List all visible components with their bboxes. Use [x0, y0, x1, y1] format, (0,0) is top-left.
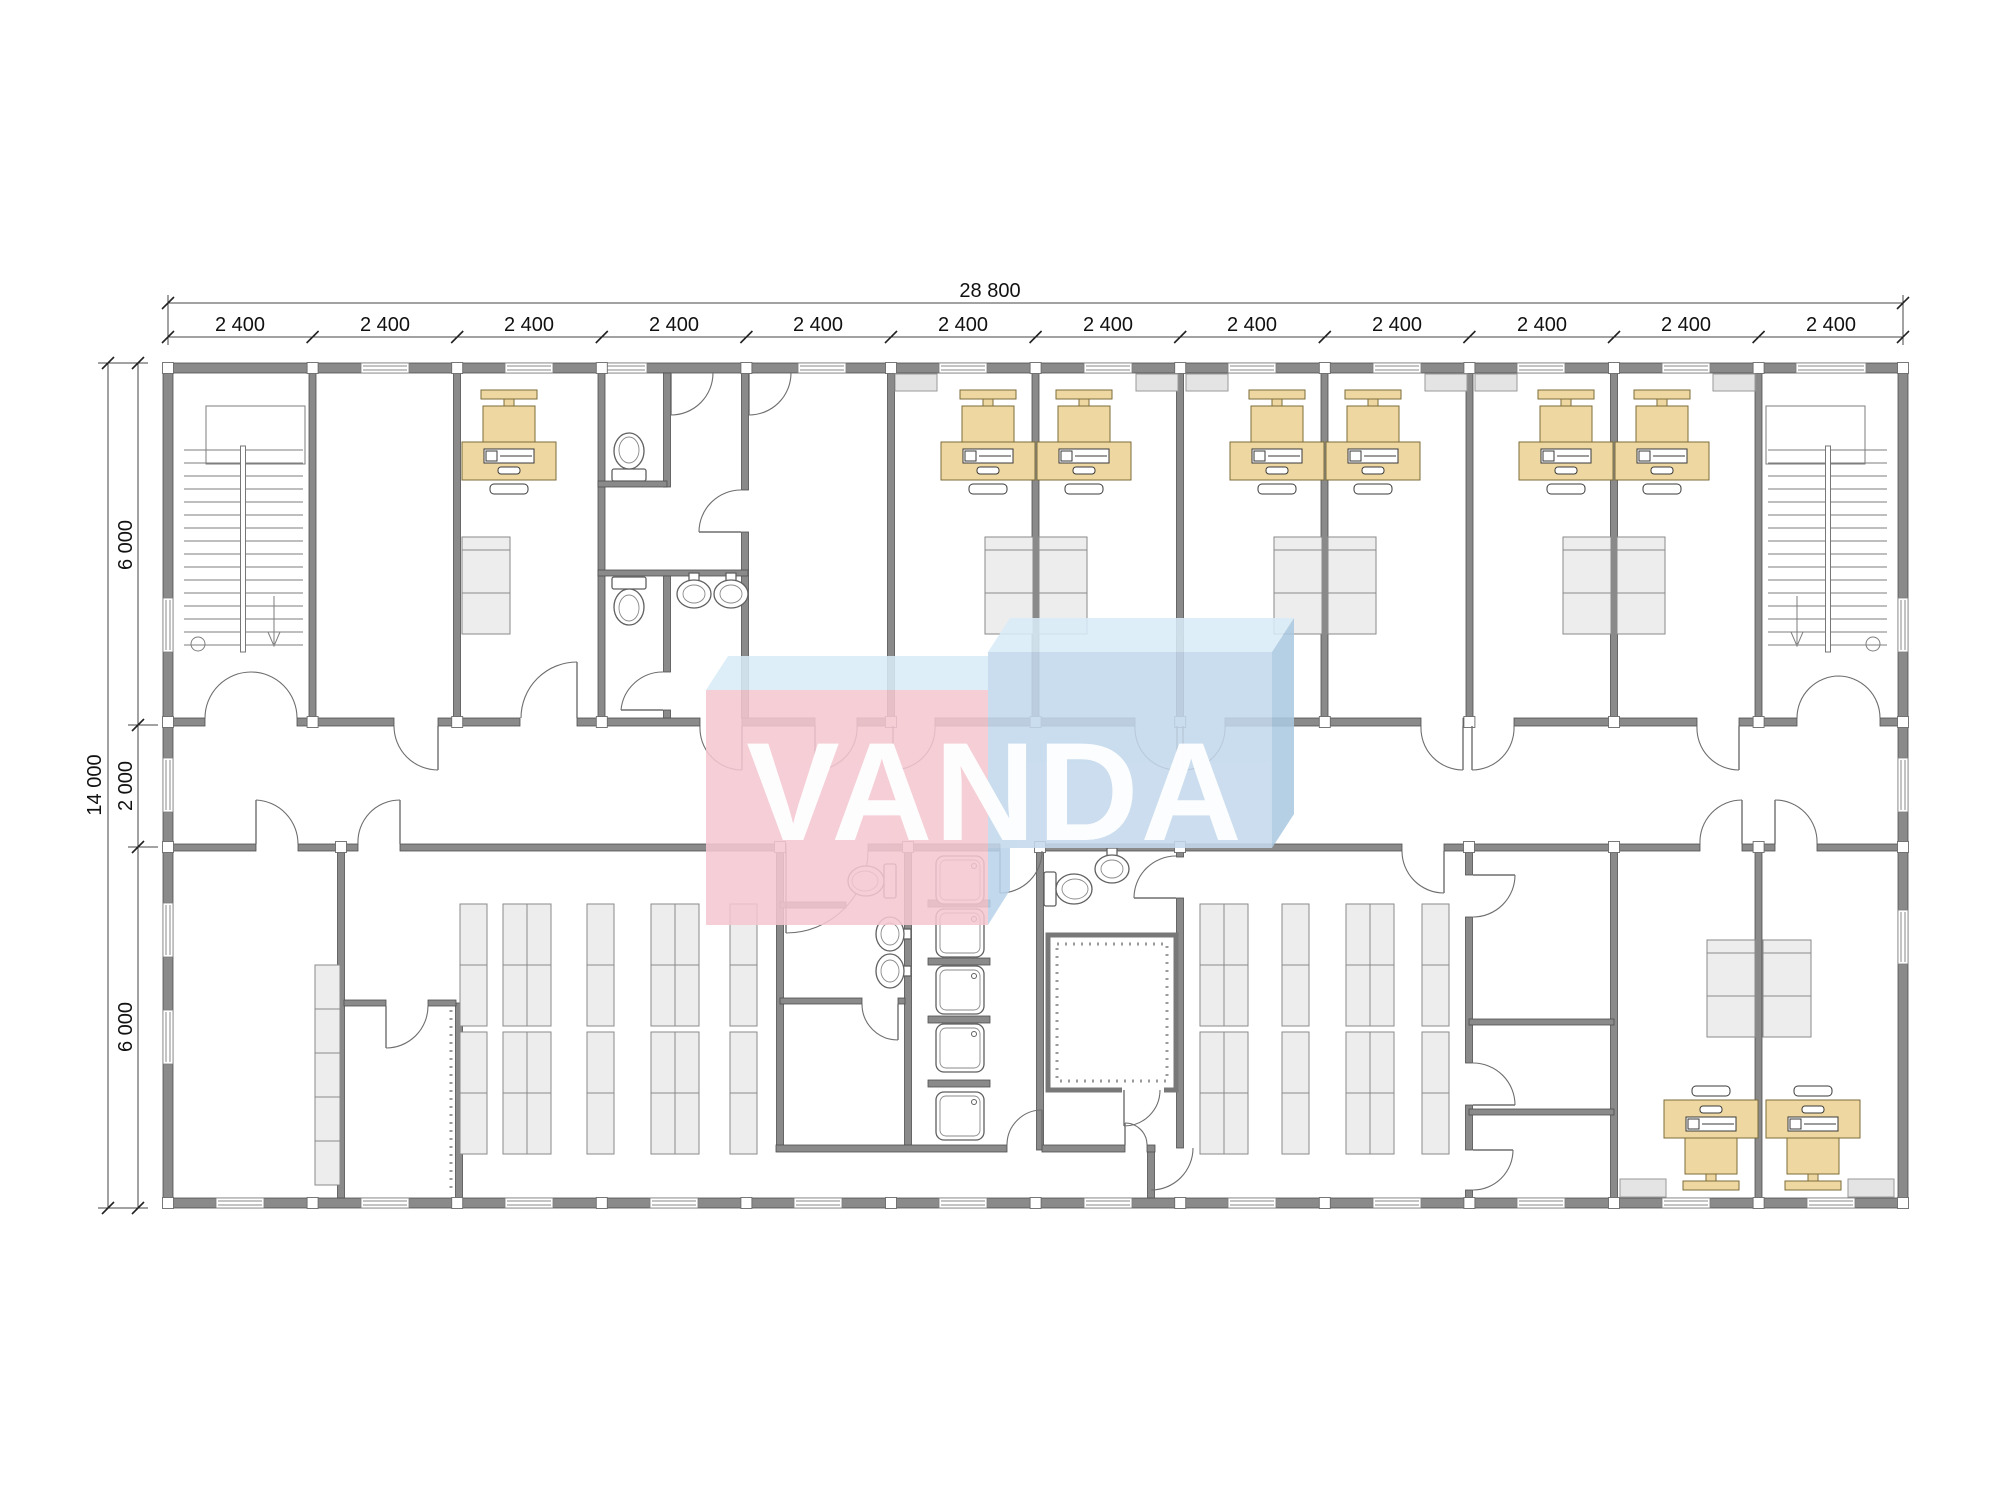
- dim-label-module-2: 2 400: [360, 314, 410, 336]
- storage-right: [1200, 904, 1449, 1154]
- floor-plan-page: 28 800 2 400 2 400 2 400 2 400 2 400 2 4…: [0, 0, 2000, 1500]
- stairwell-right: [1766, 406, 1887, 652]
- dim-label-module-4: 2 400: [649, 314, 699, 336]
- dim-label-seg-2: 2 000: [115, 761, 137, 811]
- floor-plan-svg: 28 800 2 400 2 400 2 400 2 400 2 400 2 4…: [0, 0, 2000, 1500]
- sink-icon: [677, 573, 711, 608]
- stairwell-left: [184, 406, 305, 652]
- watermark-text: VANDA: [746, 713, 1243, 870]
- wardrobe-icon: [462, 537, 510, 634]
- desk-icon: [1037, 390, 1131, 494]
- toilet-icon: [1044, 872, 1092, 906]
- dim-label-module-3: 2 400: [504, 314, 554, 336]
- dimension-left-segments: 6 000 2 000 6 000: [115, 357, 158, 1214]
- dim-label-module-7: 2 400: [1083, 314, 1133, 336]
- dim-label-module-6: 2 400: [938, 314, 988, 336]
- dim-label-module-1: 2 400: [215, 314, 265, 336]
- bathroom-top: [612, 433, 748, 625]
- dim-label-module-8: 2 400: [1227, 314, 1277, 336]
- desk-icon: [462, 390, 556, 494]
- toilet-icon: [612, 433, 646, 481]
- desk-icon: [1664, 1086, 1758, 1190]
- dim-label-seg-1: 6 000: [115, 520, 137, 570]
- desk-icon: [1519, 390, 1613, 494]
- dim-label-module-10: 2 400: [1517, 314, 1567, 336]
- sauna-room: [1048, 935, 1176, 1126]
- dim-label-total-height: 14 000: [84, 754, 106, 815]
- dim-label-module-11: 2 400: [1661, 314, 1711, 336]
- offices-top: [462, 374, 1755, 634]
- dim-label-seg-3: 6 000: [115, 1002, 137, 1052]
- desk-icon: [1766, 1086, 1860, 1190]
- desk-icon: [1615, 390, 1709, 494]
- dim-label-module-12: 2 400: [1806, 314, 1856, 336]
- storage-left: [315, 904, 757, 1185]
- dimension-top-total: 28 800: [162, 280, 1909, 345]
- dim-label-module-5: 2 400: [793, 314, 843, 336]
- desk-icon: [941, 390, 1035, 494]
- toilet-icon: [612, 577, 646, 625]
- dim-label-total-width: 28 800: [959, 280, 1020, 302]
- dim-label-module-9: 2 400: [1372, 314, 1422, 336]
- desk-icon: [1326, 390, 1420, 494]
- dimension-top-modules: 2 400 2 400 2 400 2 400 2 400 2 400 2 40…: [162, 314, 1909, 343]
- desk-icon: [1230, 390, 1324, 494]
- shelf-icon: [315, 965, 340, 1185]
